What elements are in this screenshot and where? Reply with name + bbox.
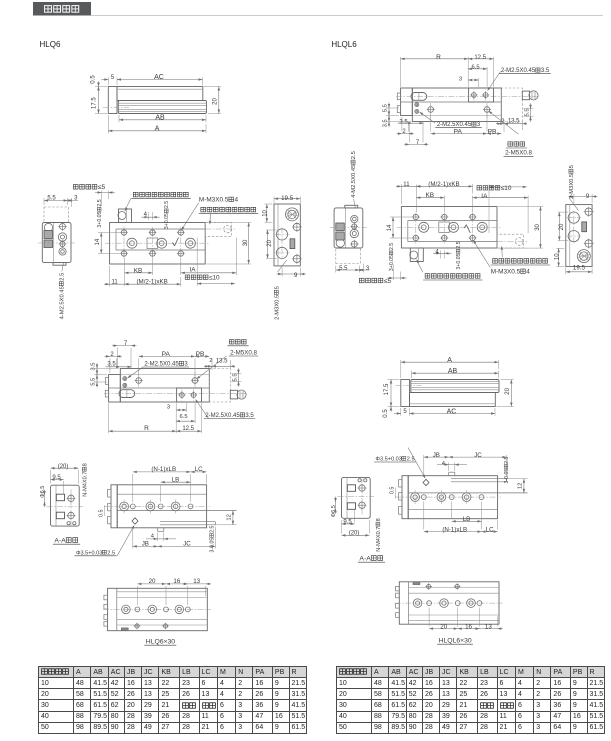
svg-text:2-M2.5X0.45: 2-M2.5X0.45: [205, 413, 240, 419]
svg-text:11: 11: [403, 182, 410, 188]
svg-text:≤5: ≤5: [98, 184, 106, 191]
svg-text:8: 8: [82, 463, 88, 466]
svg-text:5.5: 5.5: [339, 266, 348, 272]
svg-text:N-M4X0.7: N-M4X0.7: [82, 472, 88, 497]
svg-text:9: 9: [294, 273, 298, 279]
svg-text:≤10: ≤10: [209, 275, 220, 282]
svg-text:10: 10: [554, 253, 560, 260]
svg-text:2-M5X0.8: 2-M5X0.8: [230, 349, 257, 356]
svg-text:3: 3: [366, 266, 370, 272]
svg-text:PA: PA: [162, 351, 171, 358]
svg-text:9: 9: [586, 194, 590, 200]
svg-text:KB: KB: [134, 268, 143, 275]
svg-text:12: 12: [227, 514, 233, 520]
svg-text:HLQ6: HLQ6: [40, 40, 61, 49]
svg-text:M-M3X0.5: M-M3X0.5: [491, 269, 521, 276]
svg-text:2.5: 2.5: [59, 273, 65, 281]
svg-text:20: 20: [559, 223, 565, 230]
svg-text:7: 7: [416, 140, 420, 146]
svg-text:5: 5: [569, 165, 575, 168]
svg-text:5.5: 5.5: [524, 108, 530, 116]
svg-text:5.5: 5.5: [90, 378, 96, 386]
svg-text:JC: JC: [183, 541, 191, 548]
svg-text:3+0.05: 3+0.05: [164, 213, 170, 229]
svg-text:KB: KB: [426, 192, 435, 199]
svg-text:17.5: 17.5: [384, 383, 390, 395]
svg-text:2: 2: [402, 129, 406, 135]
svg-text:5.5: 5.5: [382, 104, 388, 112]
svg-text:3: 3: [459, 76, 462, 82]
svg-text:3: 3: [167, 404, 170, 410]
svg-text:8: 8: [376, 518, 382, 521]
svg-text:0.5: 0.5: [91, 75, 97, 84]
svg-text:20: 20: [149, 578, 156, 585]
svg-text:Φ6.5: Φ6.5: [40, 486, 46, 498]
svg-text:20: 20: [440, 624, 447, 631]
svg-text:LC: LC: [486, 527, 494, 534]
svg-text:LB: LB: [172, 476, 180, 483]
svg-text:0.5: 0.5: [383, 409, 389, 418]
svg-text:11: 11: [112, 280, 119, 286]
svg-text:4-M2.5X0.45: 4-M2.5X0.45: [59, 286, 65, 319]
svg-text:JB: JB: [433, 452, 440, 459]
svg-text:2-M3X0.5: 2-M3X0.5: [274, 295, 280, 320]
svg-text:A-A: A-A: [359, 555, 371, 562]
svg-text:HLQL6: HLQL6: [331, 40, 357, 49]
svg-text:PA: PA: [454, 128, 463, 135]
svg-text:14: 14: [95, 238, 101, 245]
svg-text:LC: LC: [195, 466, 203, 473]
svg-text:16: 16: [465, 624, 472, 631]
svg-text:3-0.05: 3-0.05: [504, 469, 510, 484]
svg-text:≤10: ≤10: [501, 185, 512, 192]
svg-text:12: 12: [518, 483, 524, 489]
svg-text:2-M3X0.5: 2-M3X0.5: [569, 174, 575, 199]
svg-text:(20): (20): [58, 464, 69, 470]
svg-text:2-M2.5X0.45: 2-M2.5X0.45: [501, 68, 536, 74]
svg-text:13: 13: [193, 578, 200, 585]
svg-text:30: 30: [243, 239, 249, 246]
svg-text:(20): (20): [349, 531, 360, 537]
svg-text:7: 7: [124, 341, 128, 347]
svg-text:9.5: 9.5: [343, 519, 352, 525]
svg-text:19.5: 19.5: [573, 264, 586, 271]
svg-text:6.5: 6.5: [472, 65, 480, 71]
svg-text:A: A: [447, 357, 452, 364]
svg-text:13.5: 13.5: [216, 358, 228, 364]
svg-text:(M/2-1)xKB: (M/2-1)xKB: [137, 279, 168, 286]
svg-text:4: 4: [435, 250, 439, 256]
svg-text:30: 30: [535, 223, 541, 230]
svg-text:3-0.05: 3-0.05: [210, 538, 216, 553]
svg-text:2-M5X0.8: 2-M5X0.8: [505, 150, 532, 157]
svg-text:3+0.05: 3+0.05: [389, 255, 395, 271]
svg-text:20: 20: [505, 387, 511, 394]
svg-text:3.5: 3.5: [90, 363, 96, 371]
svg-text:(N-1)xLB: (N-1)xLB: [151, 466, 176, 473]
svg-text:≤5: ≤5: [384, 278, 392, 285]
svg-text:4-M2.5X0.45: 4-M2.5X0.45: [351, 165, 357, 198]
svg-text:4: 4: [235, 197, 239, 204]
svg-text:2.5: 2.5: [164, 201, 170, 208]
svg-text:10: 10: [263, 209, 269, 216]
svg-text:IA: IA: [190, 267, 197, 274]
svg-text:0.5: 0.5: [390, 487, 396, 495]
svg-text:16: 16: [173, 578, 180, 585]
svg-text:A: A: [155, 126, 160, 133]
svg-text:IA: IA: [481, 193, 488, 200]
svg-text:R: R: [436, 54, 441, 61]
svg-text:2: 2: [209, 358, 212, 364]
svg-text:AC: AC: [154, 74, 164, 81]
svg-text:PB: PB: [488, 128, 497, 135]
svg-text:13: 13: [485, 624, 492, 631]
svg-text:2: 2: [110, 352, 114, 358]
svg-text:Φ6.5: Φ6.5: [331, 505, 337, 517]
svg-text:3.5: 3.5: [107, 361, 116, 367]
svg-text:3: 3: [184, 362, 188, 368]
svg-text:5: 5: [403, 409, 407, 415]
svg-text:M-M3X0.5: M-M3X0.5: [199, 197, 229, 204]
svg-text:2.5: 2.5: [407, 457, 415, 463]
svg-text:4: 4: [526, 269, 530, 276]
svg-text:AC: AC: [447, 409, 457, 416]
svg-text:3+0.05: 3+0.05: [97, 211, 103, 227]
svg-text:17.5: 17.5: [92, 97, 98, 109]
svg-text:3.5: 3.5: [541, 68, 550, 74]
svg-text:20: 20: [213, 98, 219, 105]
svg-text:3.5: 3.5: [245, 413, 254, 419]
svg-text:PB: PB: [196, 351, 205, 358]
svg-text:LB: LB: [463, 516, 471, 523]
svg-text:3: 3: [477, 122, 481, 128]
svg-text:5.5: 5.5: [47, 196, 56, 202]
svg-text:3.5: 3.5: [399, 120, 408, 126]
svg-text:6.5: 6.5: [180, 414, 188, 420]
svg-text:2-M2.5X0.45: 2-M2.5X0.45: [437, 122, 472, 128]
svg-text:R: R: [144, 425, 149, 432]
svg-text:HLQL6×30: HLQL6×30: [439, 637, 472, 644]
svg-text:5: 5: [111, 75, 115, 81]
svg-text:JB: JB: [142, 541, 149, 548]
svg-text:2: 2: [501, 119, 504, 125]
svg-text:Φ3.5+0.03: Φ3.5+0.03: [376, 457, 402, 463]
svg-text:HLQ6×30: HLQ6×30: [146, 638, 176, 645]
svg-text:12.5: 12.5: [182, 426, 194, 432]
svg-text:12.5: 12.5: [474, 55, 486, 61]
svg-text:AB: AB: [448, 368, 458, 375]
svg-text:3.5: 3.5: [382, 119, 388, 127]
svg-text:Φ3.5+0.03: Φ3.5+0.03: [76, 550, 102, 556]
svg-text:(N-1)xLB: (N-1)xLB: [442, 527, 467, 534]
svg-text:2.5: 2.5: [504, 456, 510, 463]
svg-text:2.5: 2.5: [97, 199, 103, 206]
svg-text:N-M4X0.7: N-M4X0.7: [376, 527, 382, 552]
svg-text:2-M2.5X0.45: 2-M2.5X0.45: [144, 362, 179, 368]
svg-text:2.5: 2.5: [107, 550, 115, 556]
svg-text:JC: JC: [474, 452, 482, 459]
svg-text:A-A: A-A: [54, 537, 66, 544]
svg-text:19.5: 19.5: [281, 195, 294, 202]
svg-text:5.5: 5.5: [232, 373, 238, 381]
svg-text:9.5: 9.5: [52, 475, 61, 481]
svg-text:2.5: 2.5: [389, 243, 395, 250]
svg-text:AB: AB: [155, 115, 165, 122]
svg-text:2.5: 2.5: [456, 241, 462, 248]
svg-text:20: 20: [267, 239, 273, 246]
svg-text:0.5: 0.5: [99, 510, 105, 518]
svg-text:(M/2-1)xKB: (M/2-1)xKB: [428, 181, 459, 188]
svg-text:14: 14: [387, 224, 393, 231]
svg-text:5: 5: [274, 286, 280, 289]
svg-text:2.5: 2.5: [210, 525, 216, 532]
svg-text:3+0.05: 3+0.05: [456, 253, 462, 269]
svg-text:13.5: 13.5: [508, 119, 520, 125]
svg-text:2.5: 2.5: [351, 151, 357, 159]
